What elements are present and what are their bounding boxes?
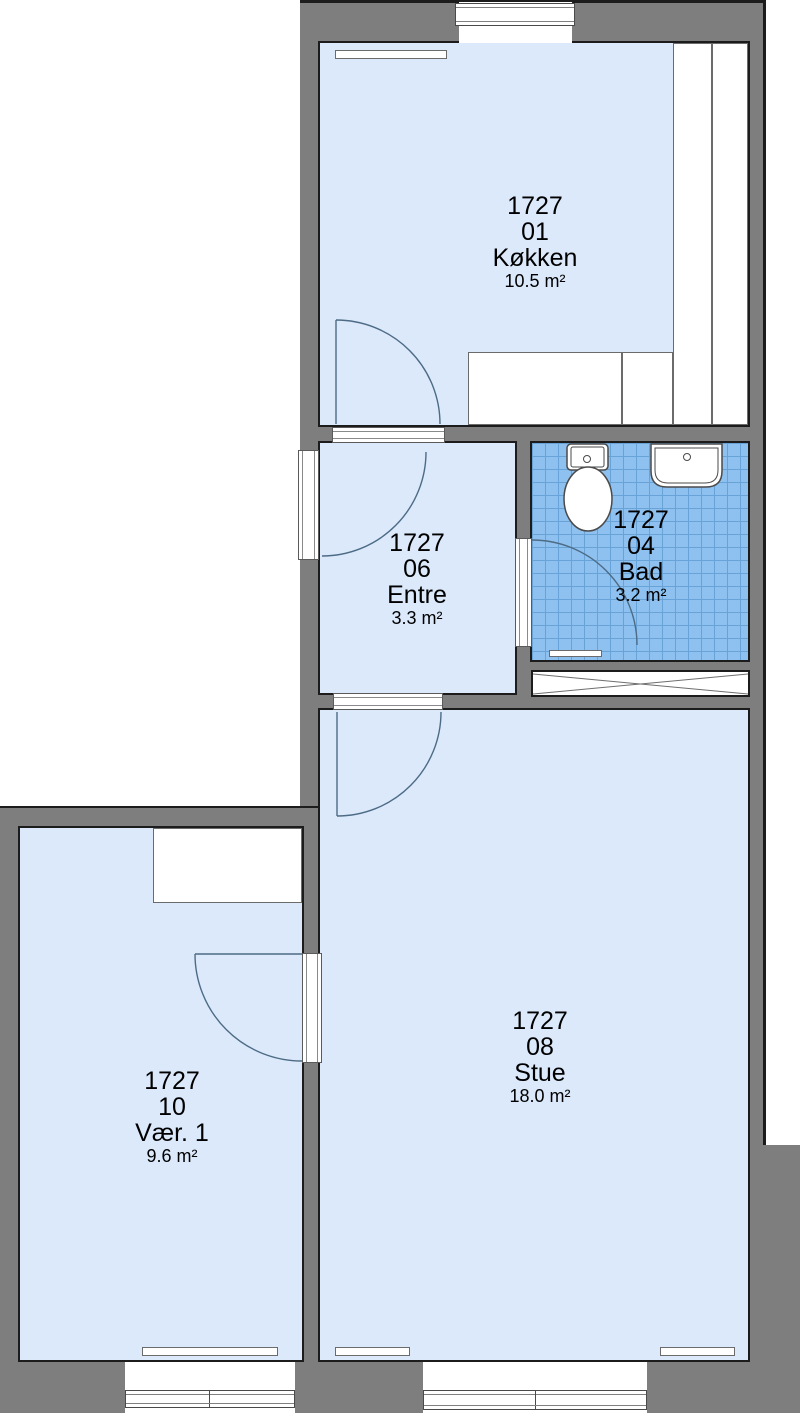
kitchen-door-swing xyxy=(336,320,440,424)
room-area: 18.0 m² xyxy=(509,1086,570,1107)
sink-drain xyxy=(684,454,691,461)
room-id: 1727 xyxy=(613,507,669,533)
room-area: 9.6 m² xyxy=(135,1146,209,1167)
room-name: Bad xyxy=(613,559,669,585)
room-id: 1727 xyxy=(509,1008,570,1034)
toilet-icon xyxy=(564,444,612,531)
room-name: Stue xyxy=(509,1060,570,1086)
toilet-bowl xyxy=(564,467,612,531)
vaer1-door-swing xyxy=(195,954,302,1061)
sink-outline xyxy=(651,444,722,487)
room-id: 1727 xyxy=(135,1068,209,1094)
room-number: 10 xyxy=(135,1094,209,1120)
room-number: 04 xyxy=(613,533,669,559)
room-name: Entre xyxy=(387,582,447,608)
room-label-vaer1: 1727 10 Vær. 1 9.6 m² xyxy=(135,1068,209,1167)
floor-plan: 1727 01 Køkken 10.5 m² 1727 06 Entre 3.3… xyxy=(0,0,800,1413)
room-name: Køkken xyxy=(493,245,578,271)
room-area: 3.2 m² xyxy=(613,585,669,606)
fixtures-overlay xyxy=(0,0,800,1413)
room-id: 1727 xyxy=(387,530,447,556)
room-label-kitchen: 1727 01 Køkken 10.5 m² xyxy=(493,193,578,292)
sink-icon xyxy=(651,444,722,487)
room-number: 06 xyxy=(387,556,447,582)
room-area: 3.3 m² xyxy=(387,608,447,629)
toilet-flush-button xyxy=(584,456,591,463)
room-label-stue: 1727 08 Stue 18.0 m² xyxy=(509,1008,570,1107)
room-area: 10.5 m² xyxy=(493,271,578,292)
room-number: 01 xyxy=(493,219,578,245)
room-id: 1727 xyxy=(493,193,578,219)
room-number: 08 xyxy=(509,1034,570,1060)
room-name: Vær. 1 xyxy=(135,1120,209,1146)
room-label-bad: 1727 04 Bad 3.2 m² xyxy=(613,507,669,606)
room-label-entre: 1727 06 Entre 3.3 m² xyxy=(387,530,447,629)
stue-door-swing xyxy=(337,712,441,816)
